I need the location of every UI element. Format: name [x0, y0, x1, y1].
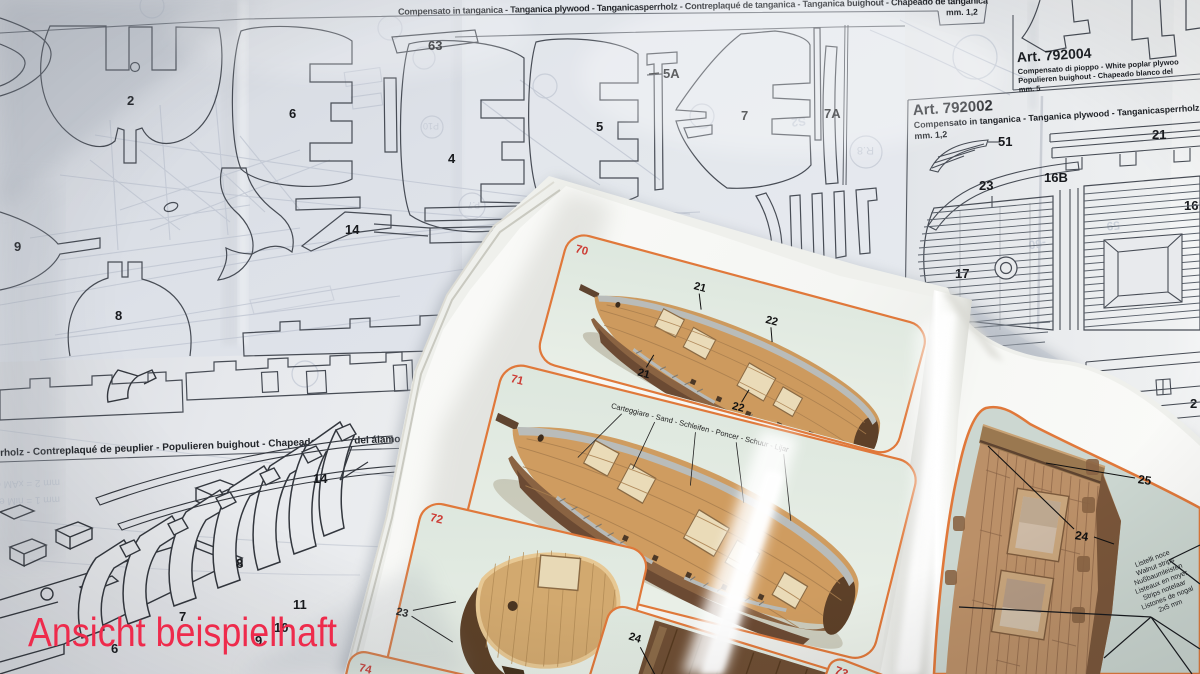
- svg-text:Ansicht beispielhaft: Ansicht beispielhaft: [28, 609, 338, 655]
